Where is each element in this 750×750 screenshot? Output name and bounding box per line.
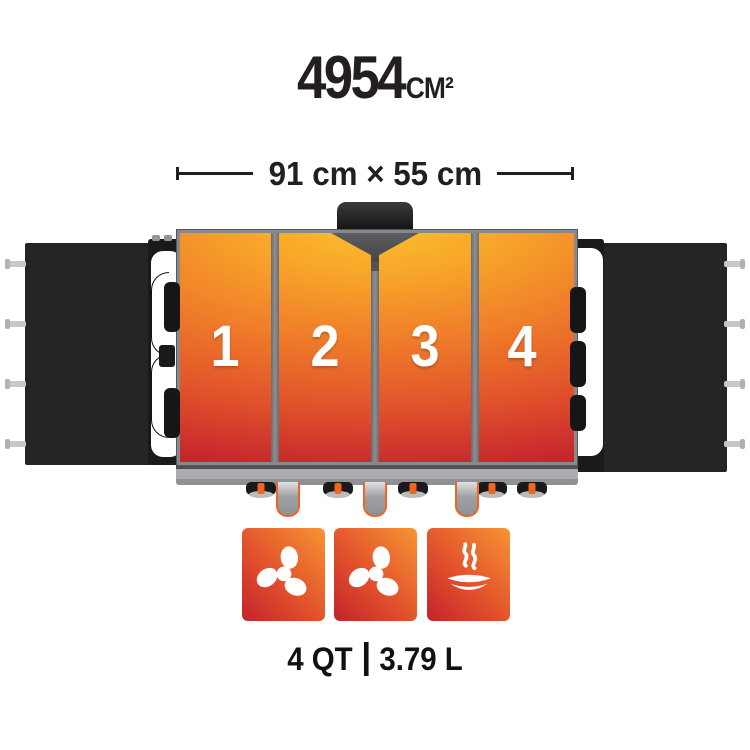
screw-icon: [152, 235, 160, 241]
side-shelf-left: [25, 243, 158, 465]
zone-divider: [271, 233, 279, 462]
dimension-label: 91 cm × 55 cm: [268, 157, 482, 190]
shelf-peg: [8, 381, 26, 387]
hinge-tab: [570, 341, 586, 387]
shelf-peg: [724, 441, 742, 447]
hinge-tab: [164, 282, 180, 332]
feature-badge-steam-dish: [427, 528, 510, 621]
page-title: 4954 CM²: [45, 48, 705, 108]
latch-tab: [363, 482, 387, 517]
zone-divider: [371, 233, 379, 462]
control-knob: [323, 482, 353, 495]
grease-funnel: [331, 233, 419, 261]
hinge-tab: [164, 388, 180, 438]
measure-line-left: [179, 172, 253, 175]
measure-tick-right: [571, 167, 574, 180]
shelf-peg: [8, 441, 26, 447]
zone-divider: [471, 233, 479, 462]
shelf-peg: [724, 321, 742, 327]
dimension-measure: 91 cm × 55 cm: [176, 160, 574, 186]
control-knob: [517, 482, 547, 495]
shelf-peg: [724, 381, 742, 387]
control-knob: [477, 482, 507, 495]
screw-icon: [164, 235, 172, 241]
infographic-canvas: 4954 CM² 91 cm × 55 cm 1: [0, 0, 750, 750]
cooking-area-value: 4954: [297, 48, 404, 108]
burner-zone-1-number: 1: [210, 317, 239, 375]
capacity-quarts: 4 QT: [287, 643, 352, 675]
latch-tab: [276, 482, 300, 517]
griddle-top: 1 2 3 4: [176, 229, 578, 466]
capacity-label: 4 QT 3.79 L: [30, 642, 720, 676]
hinge-tab: [570, 287, 586, 333]
separator-bar: [364, 642, 369, 676]
fan-icon: [344, 540, 408, 609]
steam-dish-icon: [438, 541, 500, 608]
measure-line-right: [497, 172, 571, 175]
feature-badge-fan-2: [334, 528, 417, 621]
side-shelf-right: [595, 243, 727, 472]
shelf-peg: [724, 261, 742, 267]
hinge-clip: [159, 345, 175, 367]
burner-zone-4-number: 4: [507, 317, 536, 375]
latch-tab: [455, 482, 479, 517]
hinge-tab: [570, 395, 586, 431]
capacity-liters: 3.79 L: [379, 643, 462, 675]
control-knob: [398, 482, 428, 495]
cooking-area-unit: CM²: [406, 74, 453, 104]
burner-zone-3-number: 3: [410, 317, 439, 375]
shelf-peg: [8, 321, 26, 327]
shelf-peg: [8, 261, 26, 267]
control-knob: [246, 482, 276, 495]
burner-zone-2-number: 2: [310, 317, 339, 375]
fan-icon: [252, 540, 316, 609]
feature-badge-fan-1: [242, 528, 325, 621]
cooking-surface: 1 2 3 4: [180, 233, 574, 462]
